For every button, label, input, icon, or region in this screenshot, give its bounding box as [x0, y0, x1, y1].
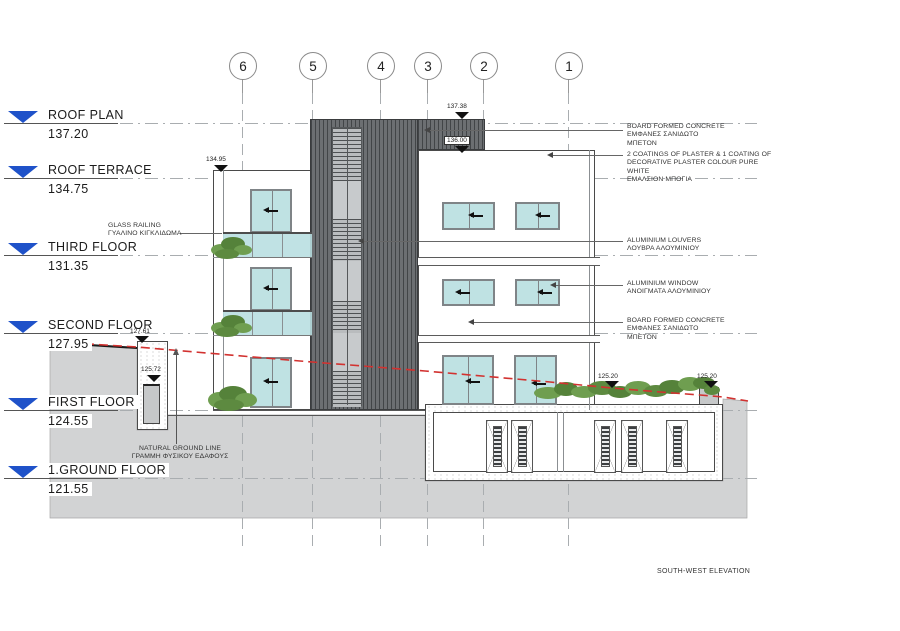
- level-label-first-floor: FIRST FLOOR: [45, 395, 138, 409]
- stair-shaft-window: [332, 127, 362, 406]
- level-marker-roof-terrace: [8, 166, 38, 178]
- spot-elevation: 134.95: [206, 156, 226, 163]
- leader-arrow-icon: [468, 319, 474, 325]
- leader-arrow-icon: [358, 238, 364, 244]
- grid-bubble-6: 6: [229, 52, 257, 80]
- door-swing-arrow-icon: [266, 381, 278, 383]
- door-swing-arrow-icon: [266, 288, 278, 290]
- basement-louver-door: [666, 420, 688, 473]
- level-value-second-floor: 127.95: [45, 337, 92, 351]
- door-swing-arrow-icon: [534, 383, 546, 385]
- glass-balustrade-3f: [223, 232, 312, 258]
- level-marker-third-floor: [8, 243, 38, 255]
- grid-bubble-1-label: 1: [565, 59, 573, 74]
- leader-arrow-up-icon: [173, 348, 179, 355]
- leader-arrow-icon: [424, 127, 430, 133]
- window-slide-arrow-icon: [471, 215, 483, 217]
- annotation-aluminium-louvers: ALUMINIUM LOUVERS ΛΟΥΒΡΑ ΑΛΟΥΜΙΝΙΟΥ: [627, 237, 701, 254]
- planter-left: [143, 384, 160, 424]
- grid-bubble-3-label: 3: [424, 59, 432, 74]
- louver-tower: [310, 119, 418, 410]
- window-slide-arrow-icon: [458, 292, 470, 294]
- glass-balustrade-2f: [223, 310, 312, 336]
- grid-bubble-6-label: 6: [239, 59, 247, 74]
- annotation-aluminium-window: ALUMINIUM WINDOW ΑΝΟΙΓΜΑΤΑ ΑΛΟΥΜΙΝΙΟΥ: [627, 280, 711, 297]
- grid-bubble-3: 3: [414, 52, 442, 80]
- window-slide-arrow-icon: [538, 215, 550, 217]
- spot-elevation: 125.72: [141, 366, 161, 373]
- sliding-door-left-1f: [250, 357, 292, 408]
- door-swing-arrow-icon: [468, 381, 480, 383]
- level-value-third-floor: 131.35: [45, 259, 92, 273]
- slab-band-third: [418, 257, 600, 266]
- annotation-glass-railing: GLASS RAILING ΓΥΑΛΙΝΟ ΚΙΓΚΛΙΔΩΜΑ: [108, 222, 182, 239]
- spot-elevation: 127.61: [130, 328, 150, 335]
- grid-bubble-2: 2: [470, 52, 498, 80]
- annotation-board-formed-concrete-mid: BOARD FORMED CONCRETE ΕΜΦΑΝΕΣ ΣΑΝΙΔΩΤΟ Μ…: [627, 317, 725, 342]
- slab-band-second: [418, 335, 600, 343]
- grid-bubble-1: 1: [555, 52, 583, 80]
- louver-tower-roof-block: [417, 119, 485, 150]
- level-value-roof-terrace: 134.75: [45, 182, 92, 196]
- basement-louver-door: [511, 420, 533, 473]
- grid-bubble-4-label: 4: [377, 59, 385, 74]
- leader-arrow-icon: [547, 152, 553, 158]
- grid-bubble-2-label: 2: [480, 59, 488, 74]
- annotation-natural-ground-line: NATURAL GROUND LINE ΓΡΑΜΜΗ ΦΥΣΙΚΟΥ ΕΔΑΦΟ…: [130, 445, 230, 462]
- level-value-ground-floor: 121.55: [45, 482, 92, 496]
- spot-elevation-boxed: 136.00: [444, 136, 470, 145]
- level-marker-second-floor: [8, 321, 38, 333]
- grid-bubble-4: 4: [367, 52, 395, 80]
- window-slide-arrow-icon: [540, 292, 552, 294]
- basement-louver-door: [486, 420, 508, 473]
- basement-louver-door: [594, 420, 616, 473]
- leader-arrow-icon: [550, 282, 556, 288]
- level-value-first-floor: 124.55: [45, 414, 92, 428]
- annotation-board-formed-concrete-top: BOARD FORMED CONCRETE ΕΜΦΑΝΕΣ ΣΑΝΙΔΩΤΟ Μ…: [627, 123, 725, 148]
- basement-louver-door: [621, 420, 643, 473]
- grid-bubble-5: 5: [299, 52, 327, 80]
- planter-right: [699, 387, 719, 405]
- spot-elevation: 137.38: [447, 103, 467, 110]
- drawing-title: SOUTH-WEST ELEVATION: [657, 568, 750, 575]
- grid-bubble-5-label: 5: [309, 59, 317, 74]
- spot-elevation: 125.20: [697, 373, 717, 380]
- level-label-roof-terrace: ROOF TERRACE: [45, 163, 155, 177]
- level-label-roof-plan: ROOF PLAN: [45, 108, 127, 122]
- level-marker-first-floor: [8, 398, 38, 410]
- door-swing-arrow-icon: [266, 210, 278, 212]
- level-label-ground-floor: 1.GROUND FLOOR: [45, 463, 169, 477]
- level-marker-ground-floor: [8, 466, 38, 478]
- level-marker-roof-plan: [8, 111, 38, 123]
- spot-elevation: 125.20: [598, 373, 618, 380]
- level-value-roof-plan: 137.20: [45, 127, 92, 141]
- annotation-plaster-coatings: 2 COATINGS OF PLASTER & 1 COATING OF DEC…: [627, 151, 771, 185]
- level-label-third-floor: THIRD FLOOR: [45, 240, 140, 254]
- elevation-drawing: 6 5 4 3 2 1 ROOF PLAN 137.20 ROOF TERRAC…: [0, 0, 900, 631]
